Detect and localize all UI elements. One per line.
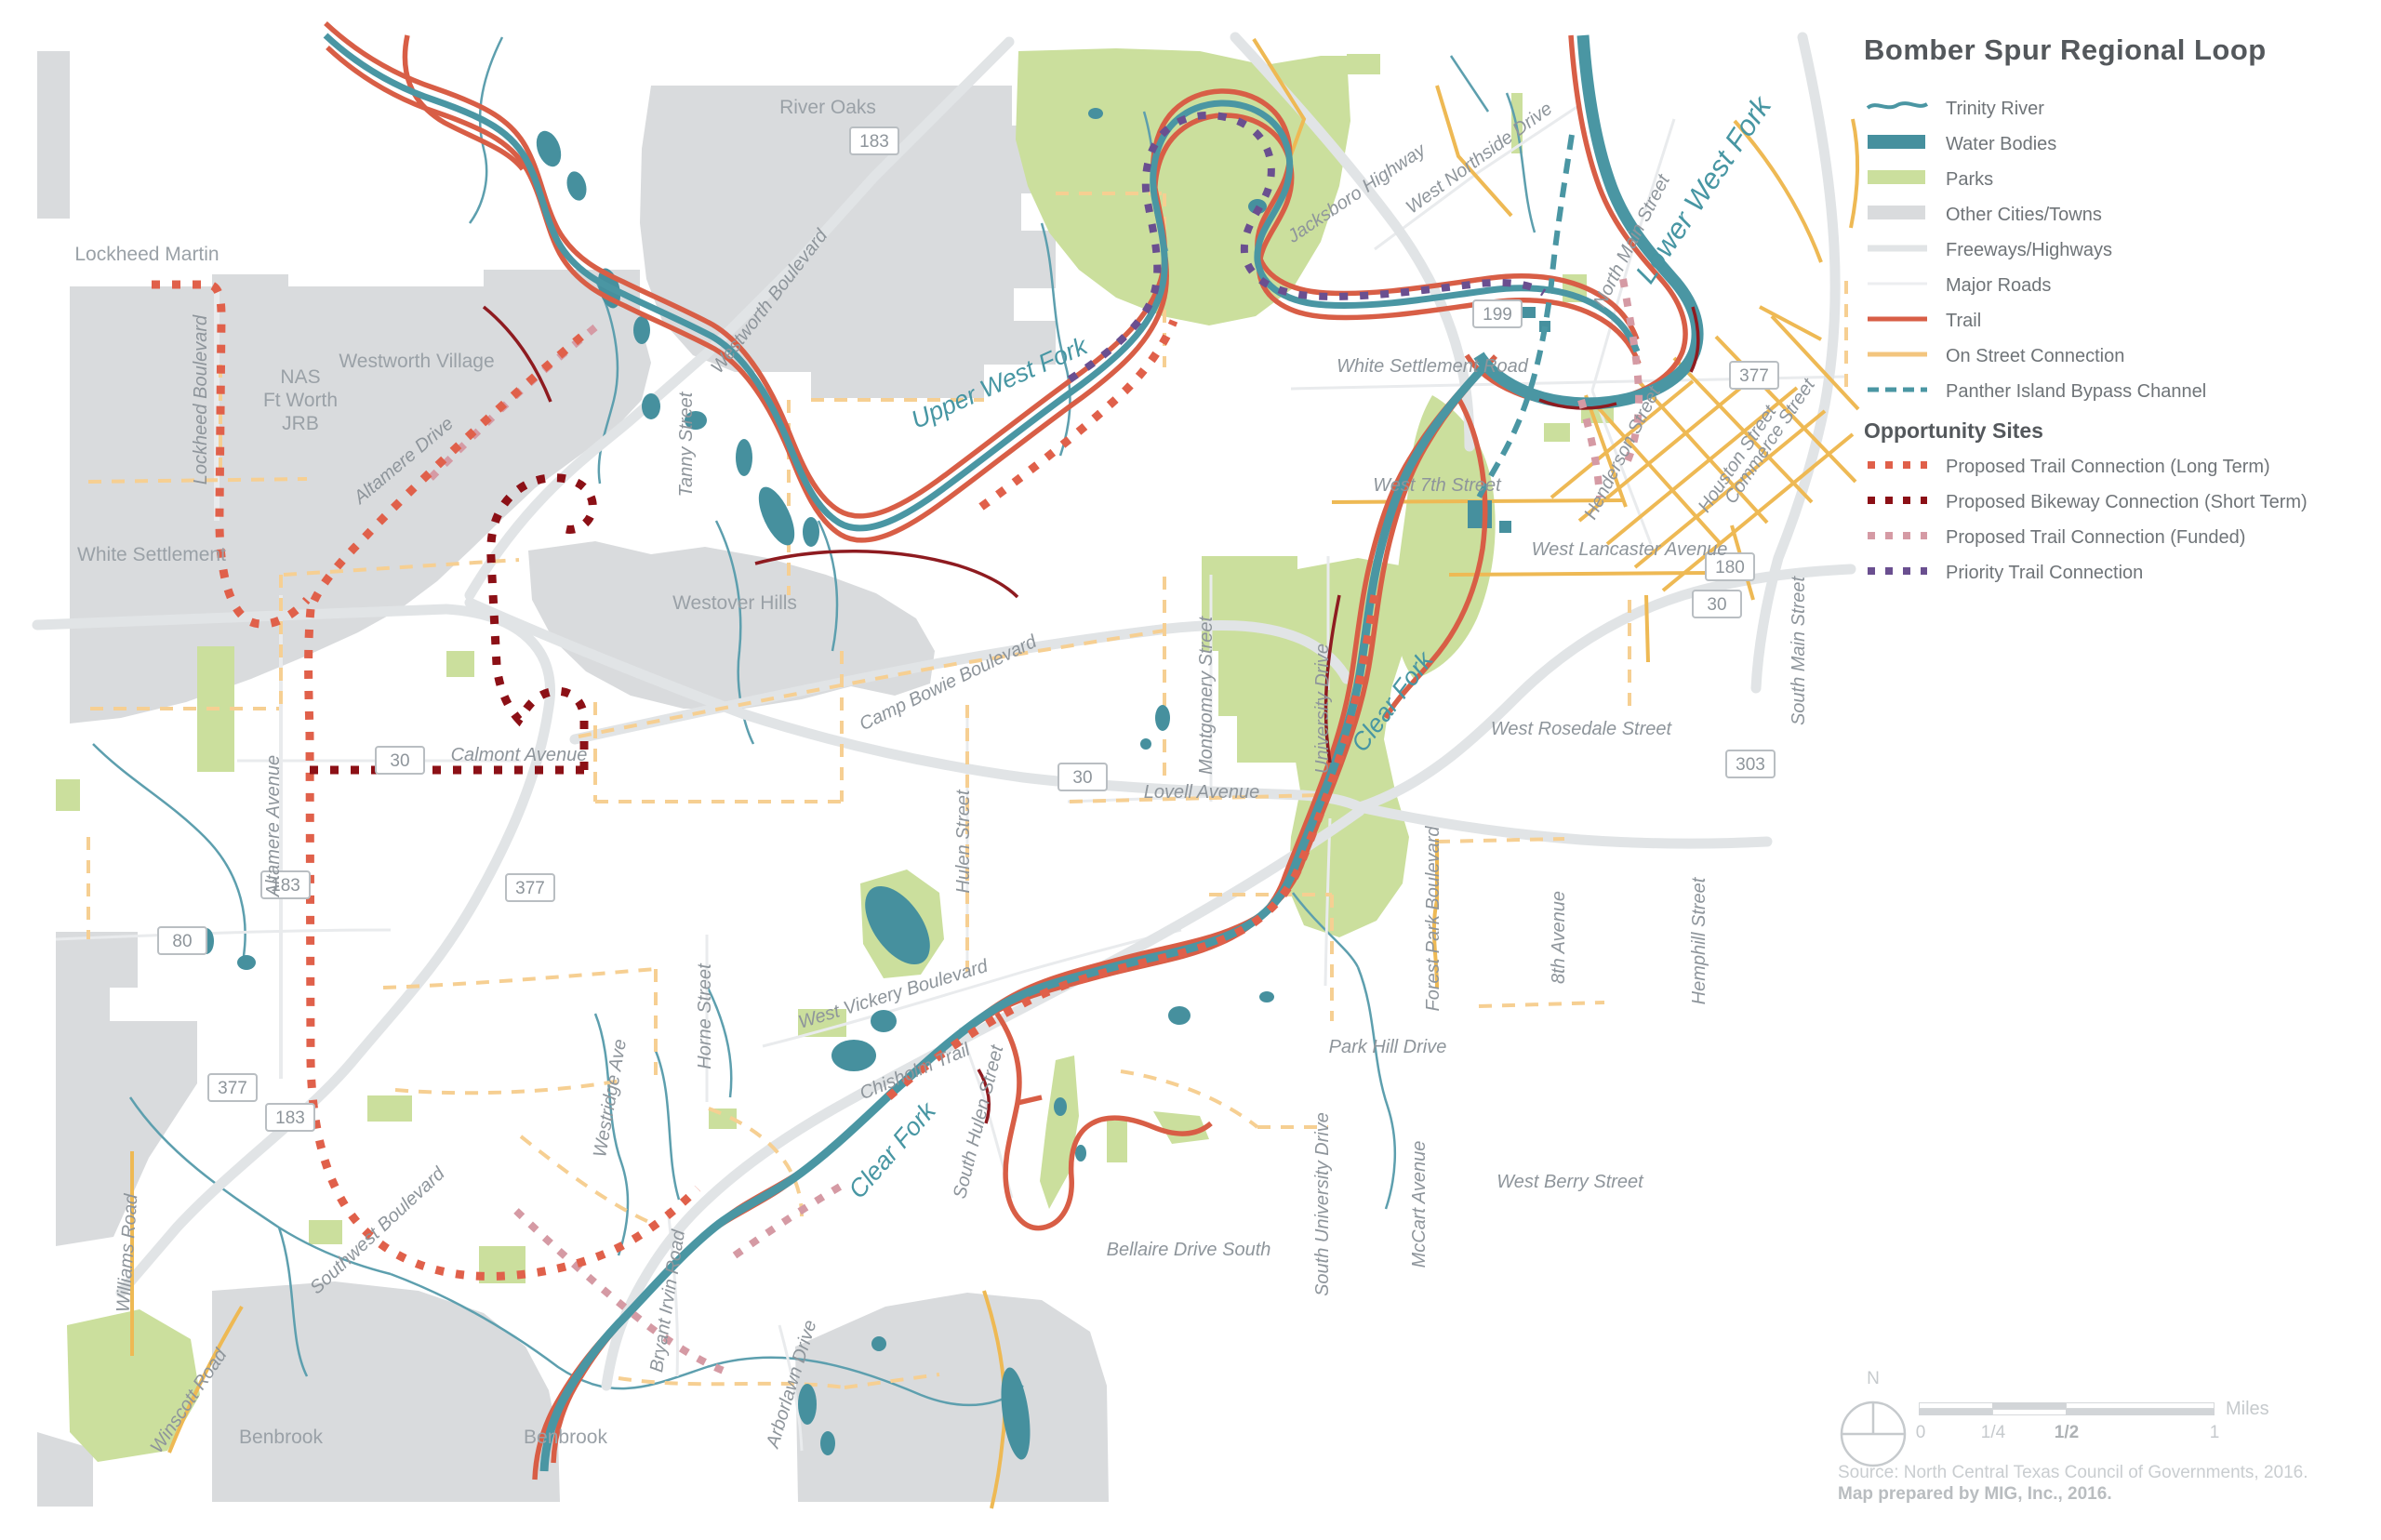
scale-bar: Miles 0 1/4 1/2 1 (1919, 1402, 2254, 1443)
river-swatch-icon (1864, 98, 1931, 116)
legend-item: Proposed Trail Connection (Long Term) (1864, 449, 2374, 485)
route-shield: 80 (158, 927, 206, 954)
svg-text:377: 377 (1739, 366, 1769, 386)
map-label-street: Tanny Street (676, 391, 697, 497)
svg-text:183: 183 (275, 1109, 305, 1128)
map-label-street: Bellaire Drive South (1107, 1240, 1271, 1260)
route-shield: 199 (1473, 300, 1522, 327)
legend-item-label: Major Roads (1946, 275, 2051, 297)
route-shield: 30 (1693, 591, 1741, 617)
map-label-city: Westworth Village (339, 351, 494, 372)
map-label-city: Ft Worth (263, 390, 338, 411)
map-page: 18319937718030303303018380377377183 Lock… (0, 0, 2381, 1540)
map-label-street: Lovell Avenue (1144, 782, 1260, 803)
legend-item-label: Trail (1946, 311, 1981, 332)
legend-item: Water Bodies (1864, 126, 2374, 162)
map-label-street: South University Drive (1312, 1112, 1333, 1296)
freeway-swatch-icon (1864, 239, 1931, 258)
legend-list: Trinity RiverWater BodiesParksOther Citi… (1864, 91, 2374, 409)
map-label-street: White Settlement Road (1337, 356, 1529, 377)
map-label-street: West Rosedale Street (1491, 719, 1673, 739)
legend-item-label: Other Cities/Towns (1946, 205, 2102, 226)
opportunity-sites-heading: Opportunity Sites (1864, 418, 2374, 444)
map-label-city: Westover Hills (672, 592, 797, 614)
legend-item-label: Proposed Trail Connection (Long Term) (1946, 457, 2270, 478)
funded-swatch-icon (1864, 526, 1931, 545)
priority-swatch-icon (1864, 562, 1931, 580)
legend-item: Panther Island Bypass Channel (1864, 374, 2374, 409)
legend-item-label: Panther Island Bypass Channel (1946, 381, 2206, 403)
legend-item-label: Proposed Trail Connection (Funded) (1946, 527, 2245, 549)
map-label-street: Hulen Street (953, 789, 974, 894)
opportunity-list: Proposed Trail Connection (Long Term)Pro… (1864, 449, 2374, 591)
legend-item: Other Cities/Towns (1864, 197, 2374, 232)
map-label-city: Lockheed Martin (74, 244, 219, 265)
map-label-street: West Lancaster Avenue (1532, 539, 1728, 560)
route-shield: 303 (1726, 750, 1775, 777)
map-label-city: JRB (282, 413, 319, 434)
legend-item-label: Freeways/Highways (1946, 240, 2112, 261)
scale-unit: Miles (2226, 1399, 2269, 1420)
prepared-line: Map prepared by MIG, Inc., 2016. (1838, 1483, 2308, 1505)
route-shield: 377 (1730, 362, 1778, 389)
longterm-swatch-icon (1864, 456, 1931, 474)
map-label-street: Altamere Avenue (263, 755, 284, 897)
map-label-street: Chisholm Trail (857, 1039, 973, 1104)
legend-item: Priority Trail Connection (1864, 555, 2374, 591)
svg-text:377: 377 (218, 1079, 247, 1098)
legend-item: Proposed Trail Connection (Funded) (1864, 520, 2374, 555)
map-label-city: River Oaks (779, 97, 876, 118)
shortterm-swatch-icon (1864, 491, 1931, 510)
legend-item: On Street Connection (1864, 339, 2374, 374)
route-shield: 30 (376, 747, 424, 774)
map-label-street: 8th Avenue (1549, 891, 1569, 984)
legend-item: Proposed Bikeway Connection (Short Term) (1864, 485, 2374, 520)
legend-item-label: On Street Connection (1946, 346, 2124, 367)
route-shield: 377 (208, 1074, 257, 1101)
svg-text:30: 30 (1707, 595, 1726, 615)
svg-text:180: 180 (1715, 558, 1745, 577)
map-credits: Source: North Central Texas Council of G… (1838, 1462, 2308, 1505)
svg-text:377: 377 (515, 879, 545, 898)
legend-item-label: Priority Trail Connection (1946, 563, 2143, 584)
legend-item: Freeways/Highways (1864, 232, 2374, 268)
map-label-city: Benbrook (524, 1427, 607, 1448)
route-shield: 377 (506, 874, 554, 901)
map-label-street: Horne Street (695, 962, 715, 1069)
map-label-street: Park Hill Drive (1329, 1037, 1447, 1057)
svg-text:199: 199 (1483, 305, 1512, 325)
svg-text:80: 80 (172, 932, 192, 951)
scale-labels: 0 1/4 1/2 1 (1919, 1423, 2254, 1443)
svg-text:30: 30 (390, 751, 409, 771)
map-label-street: South Main Street (1789, 576, 1809, 726)
legend-item: Trail (1864, 303, 2374, 339)
cities-swatch-icon (1864, 204, 1931, 222)
water-swatch-icon (1864, 133, 1931, 152)
map-label-street: Hemphill Street (1689, 876, 1709, 1004)
north-label: N (1867, 1369, 1880, 1388)
major-swatch-icon (1864, 274, 1931, 293)
legend-item-label: Parks (1946, 169, 1993, 191)
svg-text:183: 183 (859, 132, 889, 152)
legend-item: Major Roads (1864, 268, 2374, 303)
map-label-street: Westridge Ave (590, 1038, 631, 1159)
legend-item: Trinity River (1864, 91, 2374, 126)
onstreet-swatch-icon (1864, 345, 1931, 364)
map-label-city: NAS (280, 366, 320, 388)
map-label-street: McCart Avenue (1409, 1141, 1430, 1268)
legend-panel: Bomber Spur Regional Loop Trinity RiverW… (1864, 33, 2374, 591)
route-shield: 183 (850, 127, 898, 154)
trail-swatch-icon (1864, 310, 1931, 328)
map-label-street: South Hulen Street (950, 1042, 1008, 1201)
legend-item: Parks (1864, 162, 2374, 197)
map-label-river: Clear Fork (844, 1096, 942, 1204)
parks-swatch-icon (1864, 168, 1931, 187)
map-label-city: White Settlement (77, 544, 226, 565)
bypass-swatch-icon (1864, 380, 1931, 399)
map-label-street: Lockheed Boulevard (191, 314, 211, 485)
legend-item-label: Proposed Bikeway Connection (Short Term) (1946, 492, 2308, 513)
legend-item-label: Water Bodies (1946, 134, 2056, 155)
map-label-street: West Berry Street (1496, 1172, 1644, 1192)
map-title: Bomber Spur Regional Loop (1864, 33, 2374, 67)
source-line: Source: North Central Texas Council of G… (1838, 1462, 2308, 1483)
map-label-street: Forest Park Boulevard (1423, 826, 1443, 1012)
map-label-street: Montgomery Street (1196, 616, 1217, 776)
route-shield: 183 (266, 1104, 314, 1131)
route-shield: 30 (1058, 763, 1107, 790)
map-label-city: Benbrook (239, 1427, 323, 1448)
map-label-street: University Drive (1312, 644, 1333, 774)
map-label-street: West 7th Street (1373, 475, 1502, 496)
legend-item-label: Trinity River (1946, 99, 2044, 120)
map-label-street: Calmont Avenue (451, 745, 588, 765)
svg-text:303: 303 (1736, 755, 1765, 775)
svg-text:30: 30 (1072, 768, 1092, 788)
